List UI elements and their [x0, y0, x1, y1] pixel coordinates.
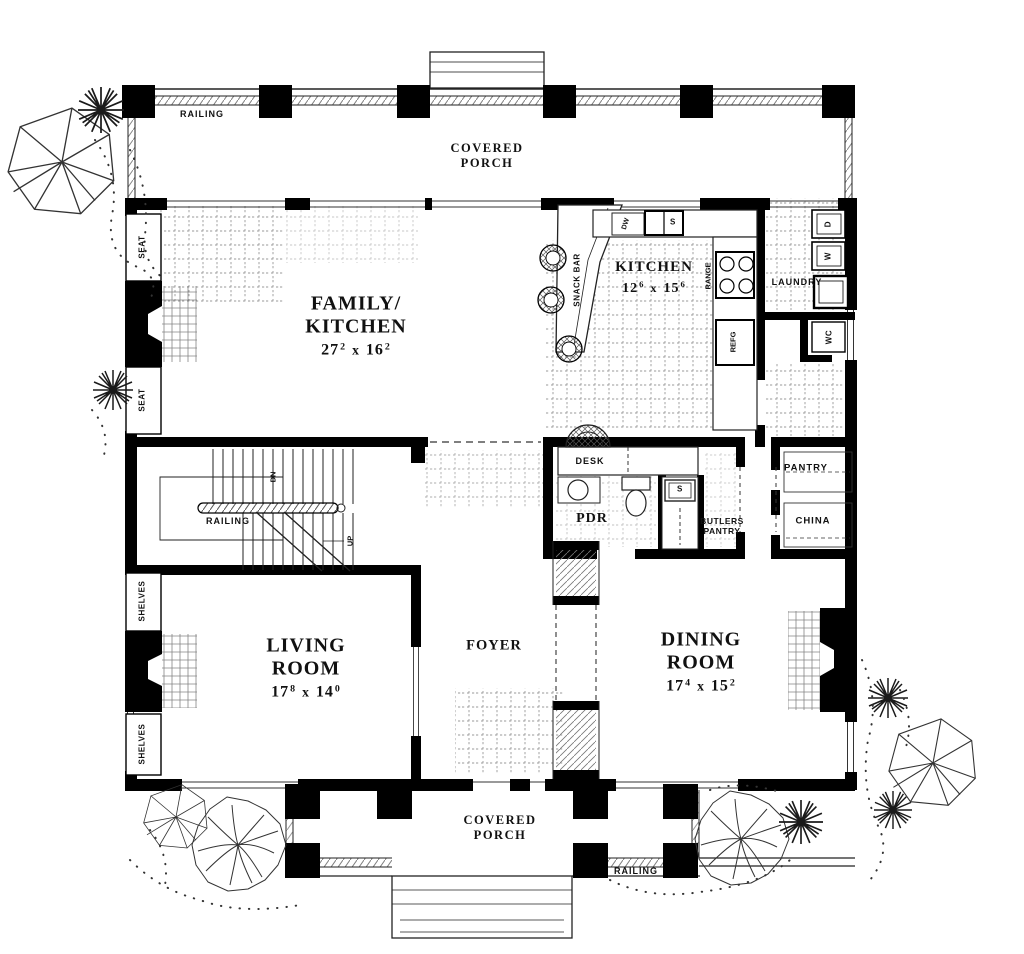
butlers-sink-label: S [677, 485, 683, 494]
shelves-label: SHELVES [138, 724, 147, 765]
stairs-down-label: DN [269, 472, 278, 483]
room-dimensions: 126x156 [615, 279, 693, 297]
dining-room-fireplace [788, 608, 857, 712]
foyer-closets [553, 541, 599, 779]
room-label-dining-room: DINING ROOM 174x152 [661, 629, 741, 696]
top-porch-steps [430, 52, 544, 88]
toilet-bowl [626, 490, 646, 516]
bottom-porch [285, 784, 855, 938]
railing-label-top: RAILING [180, 109, 224, 119]
staircase [160, 449, 353, 571]
room-label-living-room: LIVING ROOM 178x140 [266, 635, 345, 702]
pdr-sink [568, 480, 588, 500]
laundry-label: LAUNDRY [772, 277, 823, 287]
living-room-fireplace [125, 631, 197, 712]
desk-label: DESK [575, 456, 604, 466]
room-dimensions: 174x152 [661, 678, 741, 696]
butlers-pantry-label: BUTLERS PANTRY [700, 516, 744, 536]
room-dimensions: 272x162 [305, 342, 406, 360]
dryer-label: D [824, 221, 833, 227]
seat-label: SEAT [138, 388, 147, 411]
stairs-up-label: UP [346, 536, 355, 546]
shelves-label: SHELVES [138, 581, 147, 622]
bush [779, 800, 823, 844]
pantry-label: PANTRY [784, 463, 828, 474]
powder-room-label: PDR [576, 511, 608, 527]
tree [144, 785, 207, 848]
stair-railing-label: RAILING [206, 516, 250, 526]
covered-porch-label-bottom: COVERED PORCH [463, 813, 536, 843]
range-label: RANGE [704, 262, 713, 289]
snack-bar-label: SNACK BAR [573, 253, 582, 306]
bush [93, 370, 133, 410]
tree [192, 797, 286, 891]
tree [8, 108, 114, 214]
railing-label-bottom: RAILING [614, 866, 658, 876]
top-porch [122, 52, 855, 198]
water-closet-label: WC [825, 330, 834, 345]
washer-label: W [824, 252, 833, 260]
toilet-tank [622, 477, 650, 490]
floor-plan: RAILING COVERED PORCH FAMILY/ KITCHEN 27… [0, 0, 1024, 954]
room-label-foyer: FOYER [466, 638, 522, 655]
kitchen-sink-label: S [670, 218, 676, 227]
bush [874, 791, 912, 829]
stair-railing [198, 503, 338, 513]
room-label-kitchen: KITCHEN 126x156 [615, 259, 693, 297]
room-dimensions: 178x140 [266, 684, 345, 702]
refrigerator-label: REFG [729, 332, 738, 353]
bush [78, 87, 124, 133]
seat-label: SEAT [138, 235, 147, 258]
bottom-porch-steps [392, 876, 572, 938]
china-label: CHINA [795, 516, 830, 527]
tree [889, 719, 975, 805]
bush [868, 678, 908, 718]
room-label-family-kitchen: FAMILY/ KITCHEN 272x162 [305, 293, 406, 360]
covered-porch-label-top: COVERED PORCH [450, 141, 523, 171]
family-room-fireplace [125, 281, 197, 367]
